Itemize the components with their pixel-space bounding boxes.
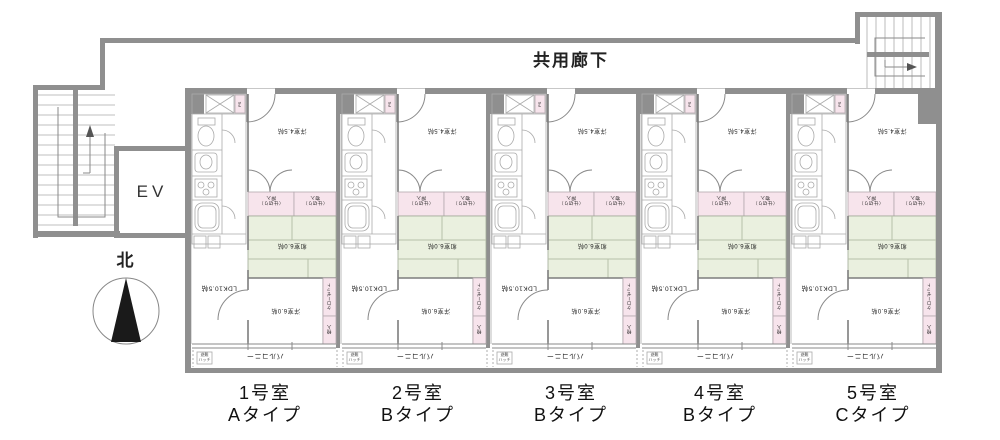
elevator-room: EV xyxy=(114,146,190,238)
unit-1: 洋室4.5帖 （仕切り） 押入 （仕切り） 物入 和室6.0帖 LDK10.5帖… xyxy=(190,88,340,373)
balcony-windows xyxy=(342,342,486,350)
bedroom-top-walls xyxy=(248,94,292,192)
sanitary-rooms xyxy=(192,94,246,248)
room-label-closet-left: （仕切り） 押入 xyxy=(248,195,294,205)
room-label-bedroom-bottom: 洋室6.0帖 xyxy=(698,306,773,313)
unit-2: 洋室4.5帖 （仕切り） 押入 （仕切り） 物入 和室6.0帖 LDK10.5帖… xyxy=(340,88,490,373)
bathtub-icon xyxy=(795,203,819,231)
corridor-left-wall xyxy=(100,38,105,90)
room-label-bedroom-bottom: 洋室6.0帖 xyxy=(548,306,623,313)
sanitary-rooms xyxy=(792,94,846,248)
room-label-tatami: 和室6.0帖 xyxy=(548,241,636,248)
washer-space-icon xyxy=(656,95,684,113)
room-label-ldk: LDK10.5帖 xyxy=(492,284,546,291)
room-label-balcony: バルコニー xyxy=(815,351,915,359)
corridor-top-wall xyxy=(100,38,857,43)
room-label-hatch: 避難 ハッチ xyxy=(797,353,812,363)
building-right-wall xyxy=(936,88,942,373)
balcony-windows xyxy=(192,342,336,350)
north-compass-icon xyxy=(88,274,164,348)
washer-space-icon xyxy=(206,95,234,113)
balcony-outer-wall xyxy=(490,368,640,373)
washer-space-icon xyxy=(806,95,834,113)
stair-direction-arrow xyxy=(83,125,94,173)
balcony-outer-wall xyxy=(790,368,940,373)
room-label-balcony: バルコニー xyxy=(215,351,315,359)
room-label-closet-right: （仕切り） 物入 xyxy=(594,195,636,205)
unit-number-label: 2号室 xyxy=(381,382,455,404)
balcony-windows xyxy=(792,342,936,350)
room-label-pipe-space: PS xyxy=(235,96,245,112)
balcony-outer-wall xyxy=(340,368,490,373)
room-label-closet-left: （仕切り） 押入 xyxy=(698,195,744,205)
room-label-hatch: 避難 ハッチ xyxy=(497,353,512,363)
room-label-hatch: 避難 ハッチ xyxy=(647,353,662,363)
kitchen-stove-icon xyxy=(195,179,217,197)
washbasin-icon xyxy=(495,153,517,172)
room-label-pipe-space: PS xyxy=(535,96,545,112)
unit-caption-1: 1号室 Aタイプ xyxy=(228,382,302,426)
unit-number-label: 4号室 xyxy=(683,382,757,404)
room-label-side-closet: クローゼット xyxy=(323,280,336,314)
room-label-closet-left: （仕切り） 押入 xyxy=(548,195,594,205)
elevator-label: EV xyxy=(137,182,168,202)
toilet-icon xyxy=(198,118,215,146)
room-label-side-closet: クローゼット xyxy=(623,280,636,314)
bedroom-top-walls xyxy=(848,94,892,192)
room-label-closet-left: （仕切り） 押入 xyxy=(848,195,894,205)
right-staircase-icon xyxy=(855,12,936,92)
unit-3: 洋室4.5帖 （仕切り） 押入 （仕切り） 物入 和室6.0帖 LDK10.5帖… xyxy=(490,88,640,373)
unit-number-label: 3号室 xyxy=(534,382,608,404)
room-label-side-storage: 物入 xyxy=(473,318,486,342)
sanitary-rooms xyxy=(642,94,696,248)
balcony-windows xyxy=(492,342,636,350)
room-label-balcony: バルコニー xyxy=(665,351,765,359)
unit-type-label: Bタイプ xyxy=(381,404,455,426)
room-label-closet-right: （仕切り） 物入 xyxy=(294,195,336,205)
unit-number-label: 1号室 xyxy=(228,382,302,404)
corridor-label: 共用廊下 xyxy=(509,46,633,71)
washbasin-icon xyxy=(195,153,217,172)
unit-caption-2: 2号室 Bタイプ xyxy=(381,382,455,426)
room-label-ldk: LDK10.5帖 xyxy=(342,284,396,291)
washer-space-icon xyxy=(506,95,534,113)
left-staircase-icon xyxy=(33,85,120,238)
room-label-tatami: 和室6.0帖 xyxy=(398,241,486,248)
room-label-bedroom-bottom: 洋室6.0帖 xyxy=(248,306,323,313)
right-stair-right-wall xyxy=(935,12,942,92)
room-label-side-storage: 物入 xyxy=(323,318,336,342)
balcony-windows xyxy=(642,342,786,350)
bedroom-top-walls xyxy=(548,94,592,192)
room-label-side-storage: 物入 xyxy=(623,318,636,342)
room-label-bedroom-top: 洋室4.5帖 xyxy=(248,126,336,133)
sanitary-rooms xyxy=(492,94,546,248)
room-label-tatami: 和室6.0帖 xyxy=(848,241,936,248)
washbasin-icon xyxy=(345,153,367,172)
floorplan-stage: 洋室4.5帖 （仕切り） 押入 （仕切り） 物入 和室6.0帖 LDK10.5帖… xyxy=(0,0,1000,440)
room-label-side-storage: 物入 xyxy=(773,318,786,342)
toilet-icon xyxy=(348,118,365,146)
room-label-balcony: バルコニー xyxy=(515,351,615,359)
room-label-hatch: 避難 ハッチ xyxy=(197,353,212,363)
unit-type-label: Bタイプ xyxy=(683,404,757,426)
room-label-pipe-space: PS xyxy=(835,96,845,112)
unit-5: 洋室4.5帖 （仕切り） 押入 （仕切り） 物入 和室6.0帖 LDK10.5帖… xyxy=(790,88,940,373)
kitchen-stove-icon xyxy=(645,179,667,197)
kitchen-stove-icon xyxy=(345,179,367,197)
bathtub-icon xyxy=(345,203,369,231)
room-label-side-storage: 物入 xyxy=(923,318,936,342)
room-label-tatami: 和室6.0帖 xyxy=(248,241,336,248)
toilet-icon xyxy=(798,118,815,146)
room-label-bedroom-bottom: 洋室6.0帖 xyxy=(848,306,923,313)
room-label-closet-right: （仕切り） 物入 xyxy=(744,195,786,205)
room-label-pipe-space: PS xyxy=(685,96,695,112)
unit-type-label: Aタイプ xyxy=(228,404,302,426)
north-label: 北 xyxy=(96,246,154,271)
room-label-tatami: 和室6.0帖 xyxy=(698,241,786,248)
unit-caption-4: 4号室 Bタイプ xyxy=(683,382,757,426)
room-label-closet-right: （仕切り） 物入 xyxy=(444,195,486,205)
room-label-ldk: LDK10.5帖 xyxy=(192,284,246,291)
toilet-icon xyxy=(498,118,515,146)
unit-caption-5: 5号室 Cタイプ xyxy=(836,382,911,426)
bathtub-icon xyxy=(645,203,669,231)
room-label-side-closet: クローゼット xyxy=(923,280,936,314)
room-label-closet-left: （仕切り） 押入 xyxy=(398,195,444,205)
room-label-side-closet: クローゼット xyxy=(473,280,486,314)
bedroom-top-walls xyxy=(698,94,742,192)
room-label-side-closet: クローゼット xyxy=(773,280,786,314)
balcony-outer-wall xyxy=(640,368,790,373)
room-label-bedroom-bottom: 洋室6.0帖 xyxy=(398,306,473,313)
room-label-hatch: 避難 ハッチ xyxy=(347,353,362,363)
toilet-icon xyxy=(648,118,665,146)
room-label-bedroom-top: 洋室4.5帖 xyxy=(848,126,936,133)
bathtub-icon xyxy=(495,203,519,231)
room-label-bedroom-top: 洋室4.5帖 xyxy=(398,126,486,133)
sanitary-rooms xyxy=(342,94,396,248)
balcony-outer-wall xyxy=(190,368,340,373)
room-label-pipe-space: PS xyxy=(385,96,395,112)
room-label-bedroom-top: 洋室4.5帖 xyxy=(698,126,786,133)
bathtub-icon xyxy=(195,203,219,231)
washer-space-icon xyxy=(356,95,384,113)
room-label-bedroom-top: 洋室4.5帖 xyxy=(548,126,636,133)
kitchen-stove-icon xyxy=(795,179,817,197)
unit-type-label: Bタイプ xyxy=(534,404,608,426)
washbasin-icon xyxy=(795,153,817,172)
unit-number-label: 5号室 xyxy=(836,382,911,404)
unit-type-label: Cタイプ xyxy=(836,404,911,426)
room-label-closet-right: （仕切り） 物入 xyxy=(894,195,936,205)
unit-caption-3: 3号室 Bタイプ xyxy=(534,382,608,426)
room-label-ldk: LDK10.5帖 xyxy=(642,284,696,291)
washbasin-icon xyxy=(645,153,667,172)
bedroom-top-walls xyxy=(398,94,442,192)
room-label-ldk: LDK10.5帖 xyxy=(792,284,846,291)
room-label-balcony: バルコニー xyxy=(365,351,465,359)
kitchen-stove-icon xyxy=(495,179,517,197)
unit-4: 洋室4.5帖 （仕切り） 押入 （仕切り） 物入 和室6.0帖 LDK10.5帖… xyxy=(640,88,790,373)
right-stair-corner-block xyxy=(918,94,938,124)
